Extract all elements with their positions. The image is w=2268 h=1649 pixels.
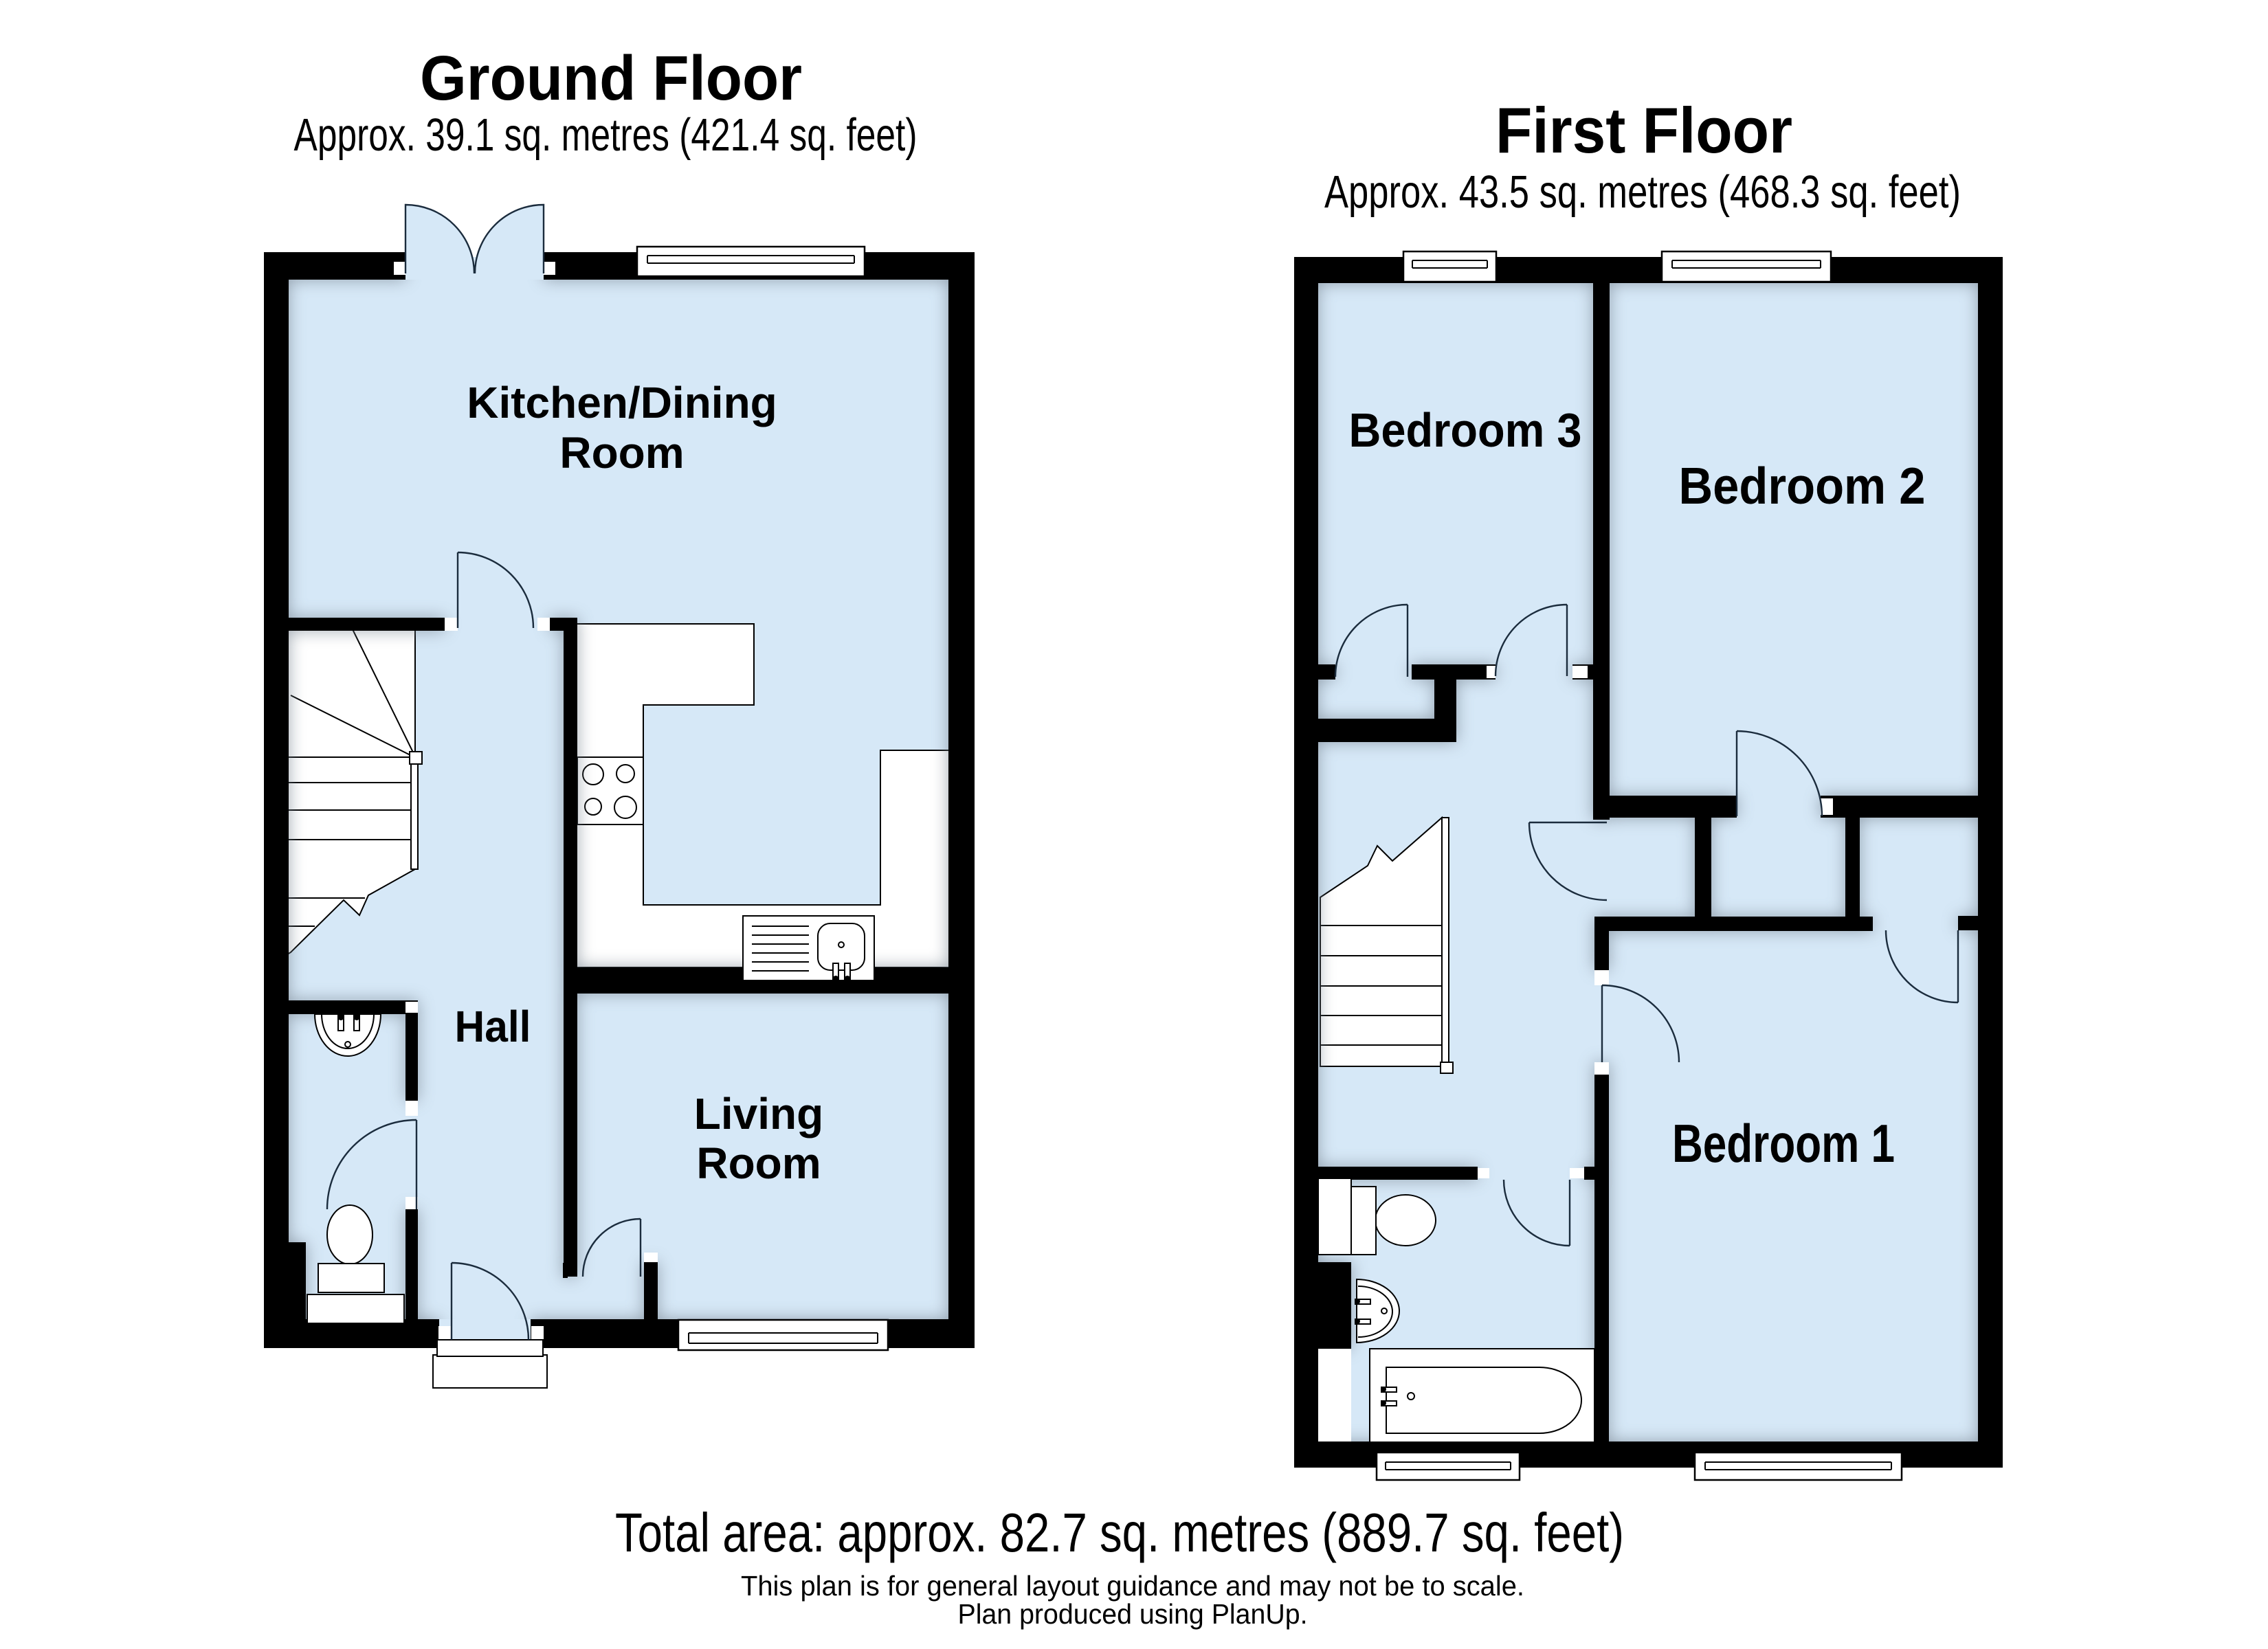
svg-text:First Floor: First Floor <box>1496 94 1792 166</box>
svg-text:Hall: Hall <box>455 1002 531 1051</box>
svg-text:Total area: approx. 82.7 sq. m: Total area: approx. 82.7 sq. metres (889… <box>615 1502 1624 1563</box>
svg-text:Plan produced using PlanUp.: Plan produced using PlanUp. <box>958 1598 1308 1630</box>
svg-text:Bedroom 1: Bedroom 1 <box>1672 1113 1895 1174</box>
svg-text:This plan is for general layou: This plan is for general layout guidance… <box>741 1570 1524 1602</box>
svg-text:Bedroom 3: Bedroom 3 <box>1349 403 1582 457</box>
svg-text:Ground Floor: Ground Floor <box>420 43 802 113</box>
svg-text:Bedroom 2: Bedroom 2 <box>1679 457 1926 515</box>
svg-text:Room: Room <box>559 428 684 478</box>
svg-text:Living: Living <box>694 1089 823 1138</box>
svg-text:Approx. 39.1 sq. metres (421.4: Approx. 39.1 sq. metres (421.4 sq. feet) <box>294 109 918 161</box>
svg-text:Approx. 43.5 sq. metres (468.3: Approx. 43.5 sq. metres (468.3 sq. feet) <box>1324 166 1961 218</box>
svg-text:Kitchen/Dining: Kitchen/Dining <box>467 378 777 427</box>
svg-text:Room: Room <box>696 1138 821 1188</box>
